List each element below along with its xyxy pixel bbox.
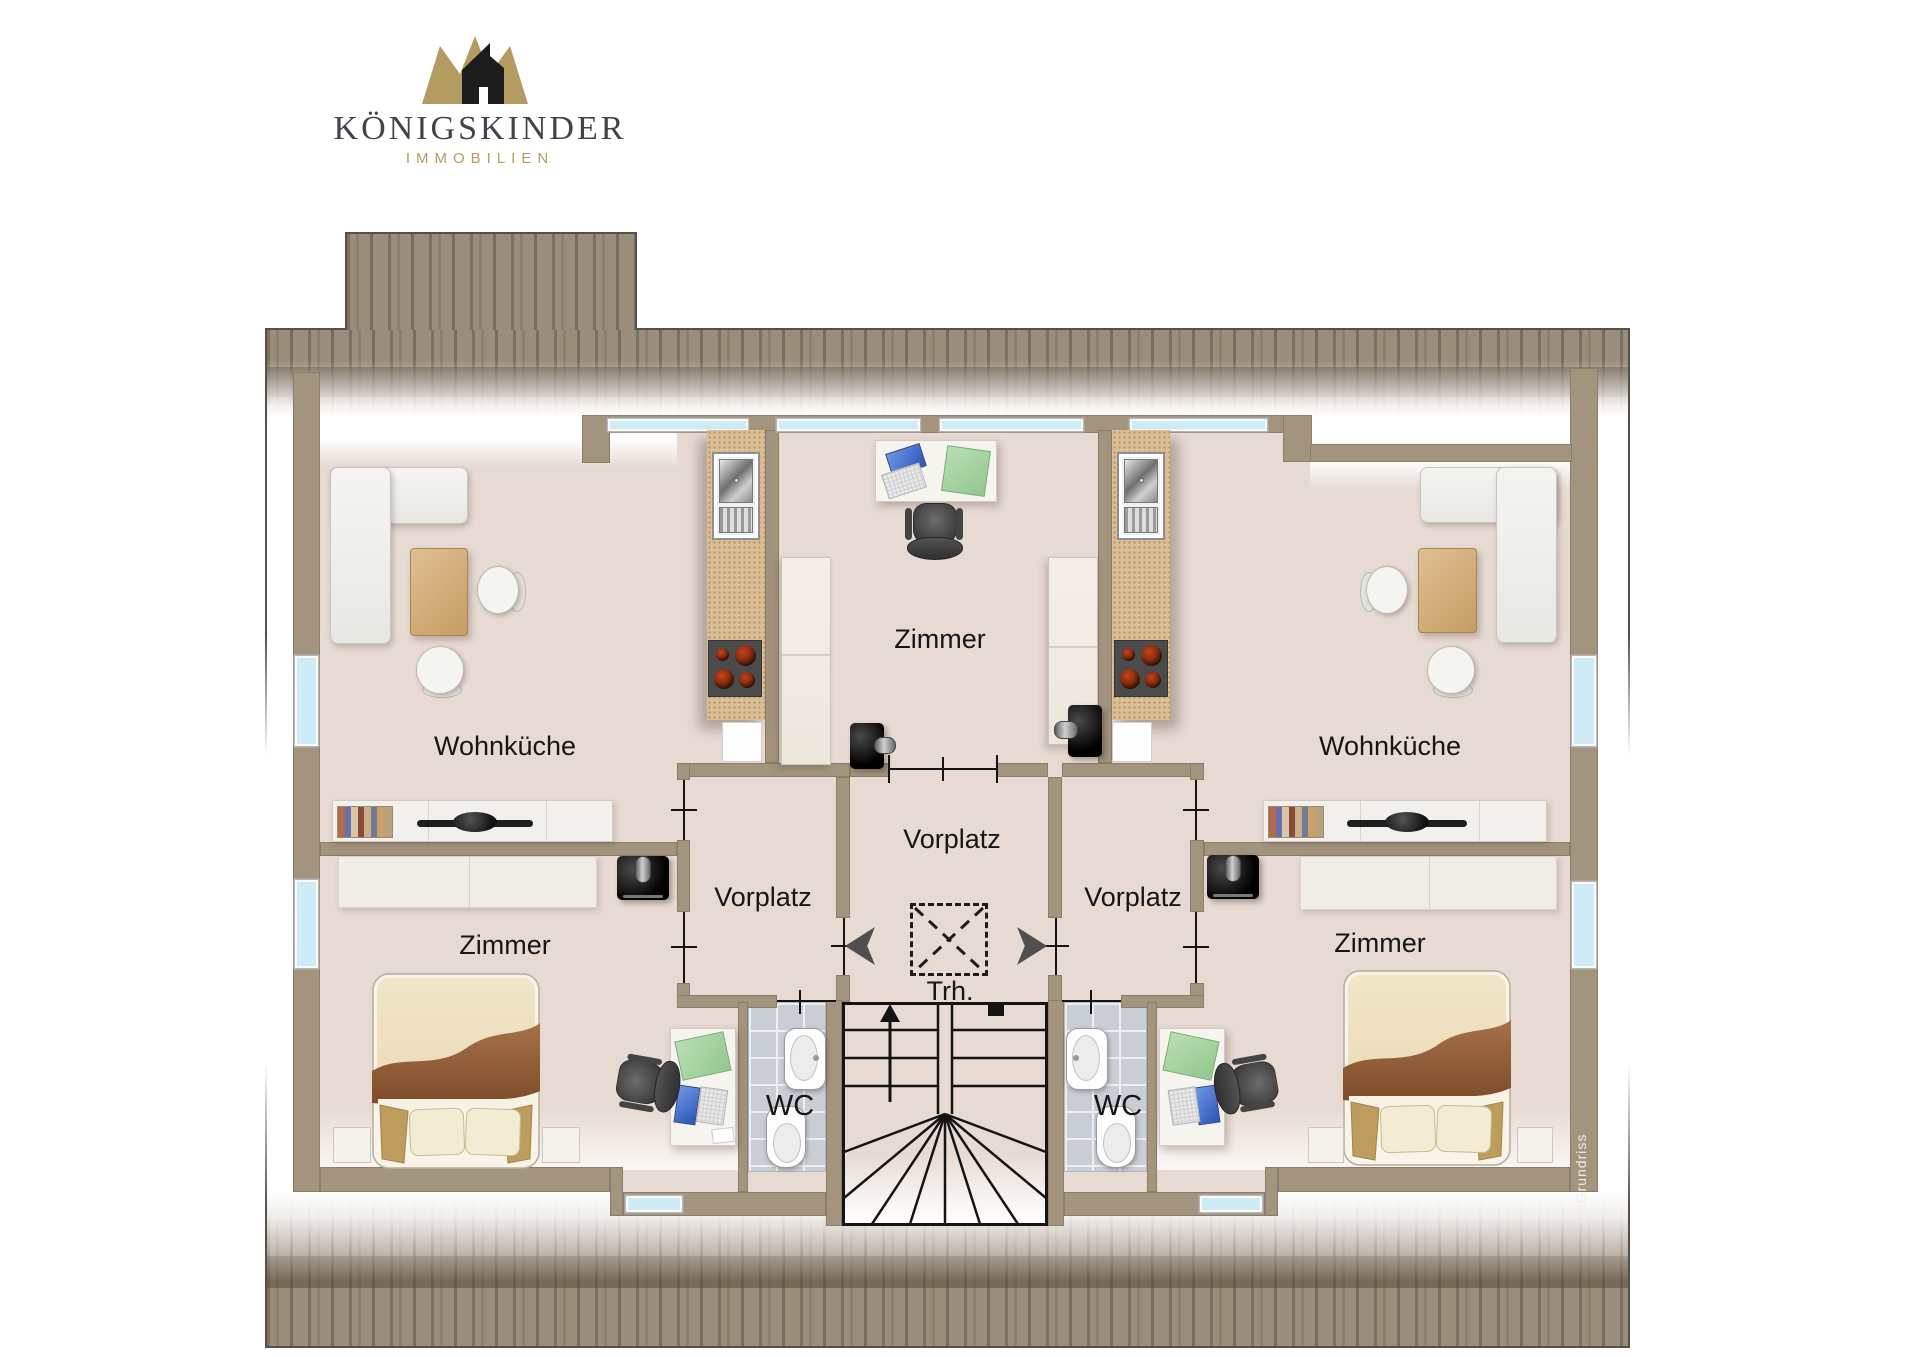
stove-icon: [708, 640, 762, 697]
door-tick: [799, 990, 801, 1014]
wall: [677, 995, 777, 1008]
dresser: [1300, 856, 1557, 910]
double-bed: [1343, 970, 1511, 1166]
wall: [1062, 763, 1204, 777]
wall: [1310, 444, 1572, 462]
books-icon: [337, 806, 393, 838]
dresser: [338, 856, 597, 908]
kitchen-sink-icon: [1117, 452, 1165, 540]
wall: [677, 763, 850, 777]
chair-icon: [477, 566, 519, 614]
window: [940, 419, 1083, 431]
corner-bench: [1496, 467, 1557, 643]
wall: [836, 777, 850, 918]
crown-house-icon: [420, 34, 530, 104]
wc-sink-icon: [1066, 1028, 1108, 1090]
door-tick: [1090, 990, 1092, 1014]
room-label-zimmer-bottom-left: Zimmer: [459, 930, 550, 961]
corner-bench: [330, 467, 391, 644]
nightstand: [542, 1127, 580, 1163]
window: [626, 1196, 682, 1212]
tv-icon: [453, 812, 497, 832]
wall: [738, 1002, 748, 1192]
heater-icon: [1207, 855, 1259, 899]
chair-icon: [1427, 646, 1475, 694]
window: [1200, 1196, 1262, 1212]
heater-icon: [850, 723, 884, 769]
nightstand: [333, 1127, 371, 1163]
chair-icon: [1366, 566, 1408, 614]
window: [1572, 882, 1596, 968]
door-tick: [1183, 809, 1209, 811]
door-jamb: [888, 755, 890, 783]
wall: [836, 975, 850, 1002]
wall: [677, 763, 690, 780]
brand-name: KÖNIGSKINDER: [330, 110, 630, 148]
office-chair-icon: [608, 1052, 684, 1115]
roof-fade: [267, 330, 1628, 418]
staircase: [842, 1002, 1048, 1226]
room-label-vorplatz-left: Vorplatz: [714, 882, 812, 913]
room-label-wohnkueche-left: Wohnküche: [434, 731, 576, 762]
wall: [1048, 1000, 1064, 1226]
room-label-vorplatz-right: Vorplatz: [1084, 882, 1182, 913]
wall: [997, 763, 1048, 777]
window: [1572, 656, 1596, 746]
nightstand: [1517, 1127, 1553, 1163]
window: [295, 656, 318, 746]
window: [777, 419, 920, 431]
laptop-icon: [696, 1086, 729, 1126]
wall: [1204, 842, 1570, 856]
room-label-wohnkueche-right: Wohnküche: [1319, 731, 1461, 762]
heater-icon: [617, 856, 669, 900]
wardrobe: [781, 557, 831, 765]
dormer-roof: [345, 232, 637, 332]
wc-sink-icon: [784, 1028, 826, 1090]
laptop-icon: [1168, 1086, 1201, 1126]
room-label-zimmer-bottom-right: Zimmer: [1334, 928, 1425, 959]
dashed-x-icon: [913, 906, 985, 973]
appliance-white: [1112, 722, 1152, 762]
wall: [1278, 1167, 1570, 1192]
brand-logo: KÖNIGSKINDER IMMOBILIEN: [330, 28, 630, 178]
wall: [1570, 368, 1598, 1192]
brand-subtitle: IMMOBILIEN: [330, 150, 630, 167]
kitchen-sink-icon: [712, 452, 760, 540]
wall: [320, 842, 677, 856]
room-label-wc-left: WC: [766, 1090, 814, 1123]
dining-table: [1418, 548, 1477, 633]
wall: [765, 430, 779, 763]
room-label-treppenhaus: Trh.: [927, 976, 974, 1007]
door-tick: [942, 757, 944, 781]
heater-icon: [1068, 705, 1102, 757]
office-chair-icon: [906, 498, 962, 560]
door-tick: [671, 946, 697, 948]
roof-band-top: [267, 330, 1628, 418]
window: [295, 880, 318, 968]
appliance-white: [722, 722, 762, 762]
wall: [1147, 1002, 1157, 1192]
door-line: [777, 1000, 836, 1002]
stove-icon: [1114, 640, 1168, 697]
chair-icon: [416, 646, 464, 694]
dining-table: [410, 548, 468, 636]
walkline-start-marker: [988, 1004, 1004, 1016]
folder-icon: [941, 445, 991, 497]
wall: [610, 1167, 623, 1216]
floorplan-page: KÖNIGSKINDER IMMOBILIEN: [0, 0, 1920, 1357]
wall: [1121, 995, 1204, 1008]
wall: [582, 415, 610, 463]
door-tick: [1183, 946, 1209, 948]
room-label-wc-right: WC: [1094, 1090, 1142, 1123]
door-jamb: [996, 755, 998, 783]
nightstand: [1308, 1127, 1344, 1163]
wall: [1265, 1167, 1278, 1216]
tv-icon: [1385, 812, 1429, 832]
door-tick: [671, 809, 697, 811]
room-label-zimmer-center: Zimmer: [894, 624, 985, 655]
wall: [1048, 975, 1062, 1002]
room-label-vorplatz-center: Vorplatz: [903, 824, 1001, 855]
wall: [1190, 840, 1204, 912]
stairwell-skylight-box: [910, 903, 988, 976]
double-bed: [372, 973, 540, 1169]
wall: [1283, 415, 1312, 462]
watermark: McGrundriss: [1573, 1124, 1589, 1224]
wall: [320, 1167, 610, 1192]
wall: [1048, 777, 1062, 918]
wall: [677, 840, 690, 912]
books-icon: [1268, 806, 1324, 838]
wall: [1190, 763, 1204, 780]
wall: [293, 372, 320, 1192]
paper-icon: [711, 1127, 734, 1144]
wall: [826, 1000, 842, 1226]
